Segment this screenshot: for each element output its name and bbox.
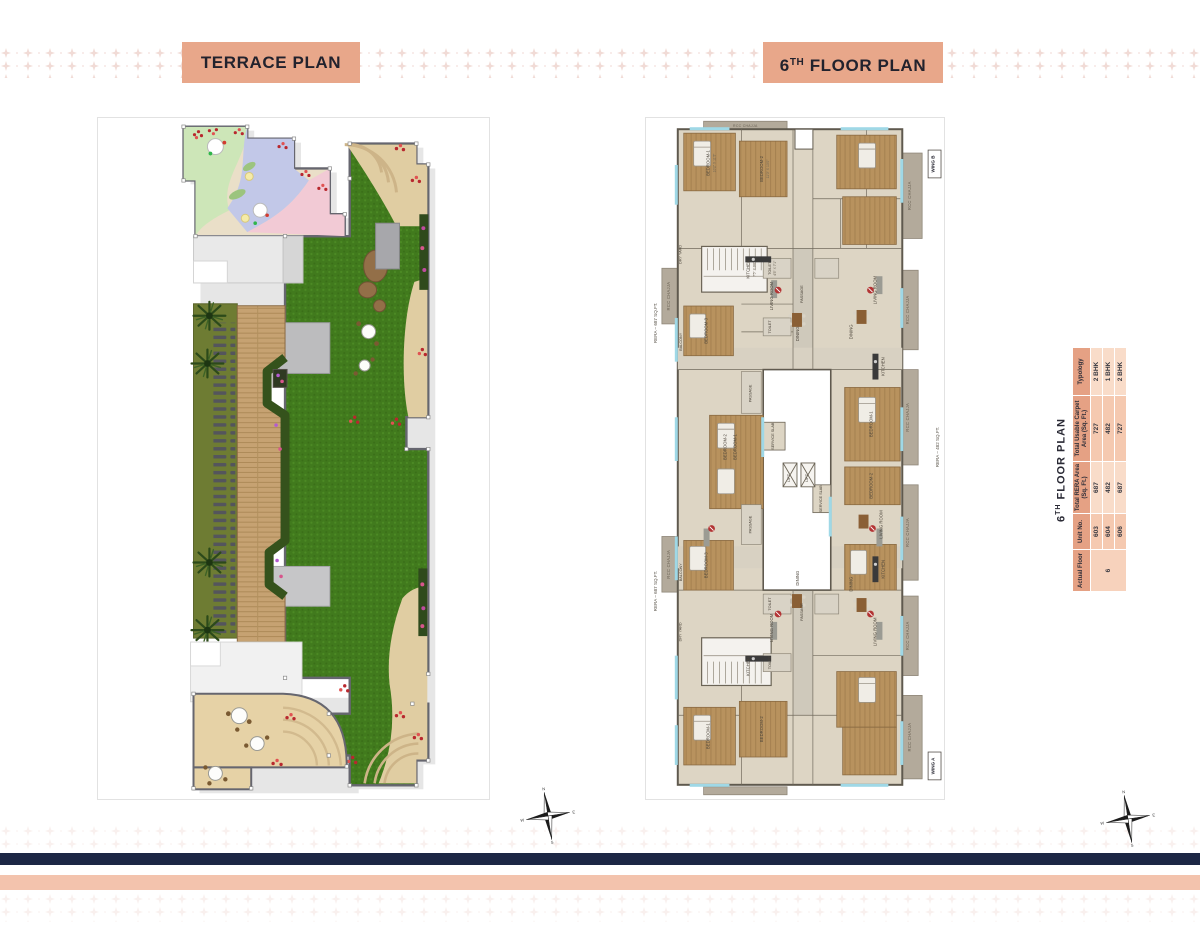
svg-text:LIFT: LIFT <box>787 473 791 481</box>
unit-table-header-row: Actual Floor Unit No. Total RERA Area (S… <box>1072 348 1091 592</box>
svg-text:BEDROOM-2: BEDROOM-2 <box>759 155 764 181</box>
svg-text:4'5" X 7'1": 4'5" X 7'1" <box>773 260 777 276</box>
roof-slab-mid <box>279 323 330 374</box>
svg-text:BEDROOM-2: BEDROOM-2 <box>722 434 727 460</box>
svg-text:10'2" X 11'5": 10'2" X 11'5" <box>713 153 717 173</box>
svg-text:TOILET: TOILET <box>768 320 772 334</box>
svg-text:LIVING ROOM: LIVING ROOM <box>769 613 774 642</box>
svg-text:DINING: DINING <box>795 571 800 586</box>
floor-num-sup: TH <box>790 57 805 68</box>
roof-slab-upper <box>376 223 400 269</box>
unit-table: Actual Floor Unit No. Total RERA Area (S… <box>1072 347 1128 592</box>
compass-rose-right: N E S W <box>1099 789 1157 847</box>
unit-table-title-num: 6 <box>1056 515 1068 522</box>
svg-text:RCC CHAJJA: RCC CHAJJA <box>666 282 671 311</box>
svg-text:DINING: DINING <box>849 577 854 592</box>
col-typology: Typology <box>1072 348 1091 396</box>
svg-text:BEDROOM-3: BEDROOM-3 <box>704 552 709 578</box>
svg-text:W: W <box>1100 820 1105 826</box>
svg-text:LIVING ROOM: LIVING ROOM <box>872 275 877 304</box>
svg-text:PASSAGE: PASSAGE <box>800 285 804 303</box>
svg-text:RCC CHAJJA: RCC CHAJJA <box>905 621 910 650</box>
svg-text:RCC CHAJJA: RCC CHAJJA <box>733 124 758 128</box>
svg-text:RERA – 482 SQ.FT.: RERA – 482 SQ.FT. <box>935 427 940 467</box>
svg-text:TOILET: TOILET <box>768 261 772 275</box>
svg-text:BEDROOM-1: BEDROOM-1 <box>868 411 873 437</box>
svg-text:BEDROOM-1: BEDROOM-1 <box>706 723 711 749</box>
svg-text:RERA – 687 SQ.FT.: RERA – 687 SQ.FT. <box>653 571 658 611</box>
svg-text:SERVICE SLAB: SERVICE SLAB <box>771 422 775 450</box>
sparkle-band-bottom-1 <box>0 826 1200 850</box>
wing-b-label: WING B <box>931 155 936 173</box>
svg-text:LIFT: LIFT <box>805 473 809 481</box>
svg-text:LIVING ROOM: LIVING ROOM <box>872 617 877 646</box>
svg-text:BALCONY: BALCONY <box>679 563 683 581</box>
floor-plan-drawing: LIVING ROOM LIVING ROOM LIVING ROOM LIVI… <box>646 118 944 799</box>
compass-n: N <box>542 786 546 791</box>
compass-s: S <box>550 839 554 844</box>
svg-text:RCC CHAJJA: RCC CHAJJA <box>907 181 912 210</box>
compass-rose-left: N E S W <box>519 786 577 844</box>
unit-table-title-sup: TH <box>1055 504 1062 515</box>
svg-text:RCC CHAJJA: RCC CHAJJA <box>905 518 910 547</box>
floor-plan-panel: LIVING ROOM LIVING ROOM LIVING ROOM LIVI… <box>645 117 945 800</box>
actual-floor-value: 6 <box>1091 550 1127 592</box>
svg-text:PASSAGE: PASSAGE <box>748 384 752 402</box>
svg-text:TOILET: TOILET <box>768 655 772 669</box>
svg-text:BEDROOM-2: BEDROOM-2 <box>868 472 873 498</box>
floor-title-rest: FLOOR PLAN <box>804 56 926 75</box>
compass-e: E <box>572 809 576 814</box>
svg-text:RCC CHAJJA: RCC CHAJJA <box>907 723 912 752</box>
svg-text:N: N <box>1122 789 1126 794</box>
svg-text:LIVING ROOM: LIVING ROOM <box>878 510 883 539</box>
svg-text:KITCHEN: KITCHEN <box>880 560 885 579</box>
sparkle-band-top <box>0 48 1200 78</box>
brochure-page: TERRACE PLAN 6TH FLOOR PLAN <box>0 0 1200 933</box>
terrace-plan-title: TERRACE PLAN <box>182 42 360 83</box>
svg-text:RCC CHAJJA: RCC CHAJJA <box>905 296 910 325</box>
svg-text:S: S <box>1130 842 1134 847</box>
footer-salmon-bar <box>0 875 1200 890</box>
svg-text:BEDROOM-1: BEDROOM-1 <box>706 149 711 175</box>
col-rera-area: Total RERA Area (Sq. Ft.) <box>1072 462 1091 514</box>
unit-row-603: 6 603 687 727 2 BHK <box>1091 348 1103 592</box>
svg-text:BALCONY: BALCONY <box>679 332 683 350</box>
svg-text:PASSAGE: PASSAGE <box>800 603 804 621</box>
wing-a-label: WING A <box>931 757 936 774</box>
sparkle-band-bottom-2 <box>0 894 1200 922</box>
compass-w: W <box>520 817 525 823</box>
svg-text:KITCHEN: KITCHEN <box>745 657 750 676</box>
top-notch <box>795 129 813 149</box>
svg-text:DINING: DINING <box>849 324 854 339</box>
col-carpet-area: Total Usable Carpet Area (Sq. Ft.) <box>1072 396 1091 462</box>
svg-text:DRY YARD: DRY YARD <box>679 622 683 641</box>
svg-text:RCC CHAJJA: RCC CHAJJA <box>666 550 671 579</box>
svg-text:SERVICE SLAB: SERVICE SLAB <box>819 485 823 513</box>
svg-text:TOILET: TOILET <box>768 597 772 611</box>
terrace-plan-title-text: TERRACE PLAN <box>201 53 341 72</box>
svg-text:DINING: DINING <box>795 326 800 341</box>
unit-table-title: 6TH FLOOR PLAN <box>1055 348 1068 592</box>
footer-navy-bar <box>0 853 1200 865</box>
terrace-plan-drawing <box>98 118 489 799</box>
sixth-floor-plan-title: 6TH FLOOR PLAN <box>763 42 943 83</box>
svg-text:7'5" X 9'6": 7'5" X 9'6" <box>752 261 756 277</box>
svg-text:RCC CHAJJA: RCC CHAJJA <box>905 403 910 432</box>
col-actual-floor: Actual Floor <box>1072 550 1091 592</box>
svg-text:PASSAGE: PASSAGE <box>748 515 752 533</box>
svg-text:BEDROOM-1: BEDROOM-1 <box>732 434 737 460</box>
unit-table-rotated: 6TH FLOOR PLAN Actual Floor Unit No. Tot… <box>1055 348 1137 592</box>
svg-text:KITCHEN: KITCHEN <box>880 357 885 376</box>
svg-text:BEDROOM-3: BEDROOM-3 <box>704 317 709 343</box>
svg-text:E: E <box>1152 812 1156 817</box>
floor-num: 6 <box>780 56 790 75</box>
svg-text:11'0" X 10'0": 11'0" X 10'0" <box>766 159 770 179</box>
unit-table-title-rest: FLOOR PLAN <box>1056 418 1068 504</box>
svg-text:KITCHEN: KITCHEN <box>745 260 750 279</box>
svg-text:BEDROOM-2: BEDROOM-2 <box>759 716 764 742</box>
svg-text:LIVING ROOM: LIVING ROOM <box>769 281 774 310</box>
play-area <box>184 127 345 236</box>
terrace-plan-panel <box>97 117 490 800</box>
col-unit-no: Unit No. <box>1072 514 1091 550</box>
svg-text:DRY YARD: DRY YARD <box>679 245 683 264</box>
svg-text:RERA – 687 SQ.FT.: RERA – 687 SQ.FT. <box>653 303 658 343</box>
planter-box <box>273 369 287 387</box>
